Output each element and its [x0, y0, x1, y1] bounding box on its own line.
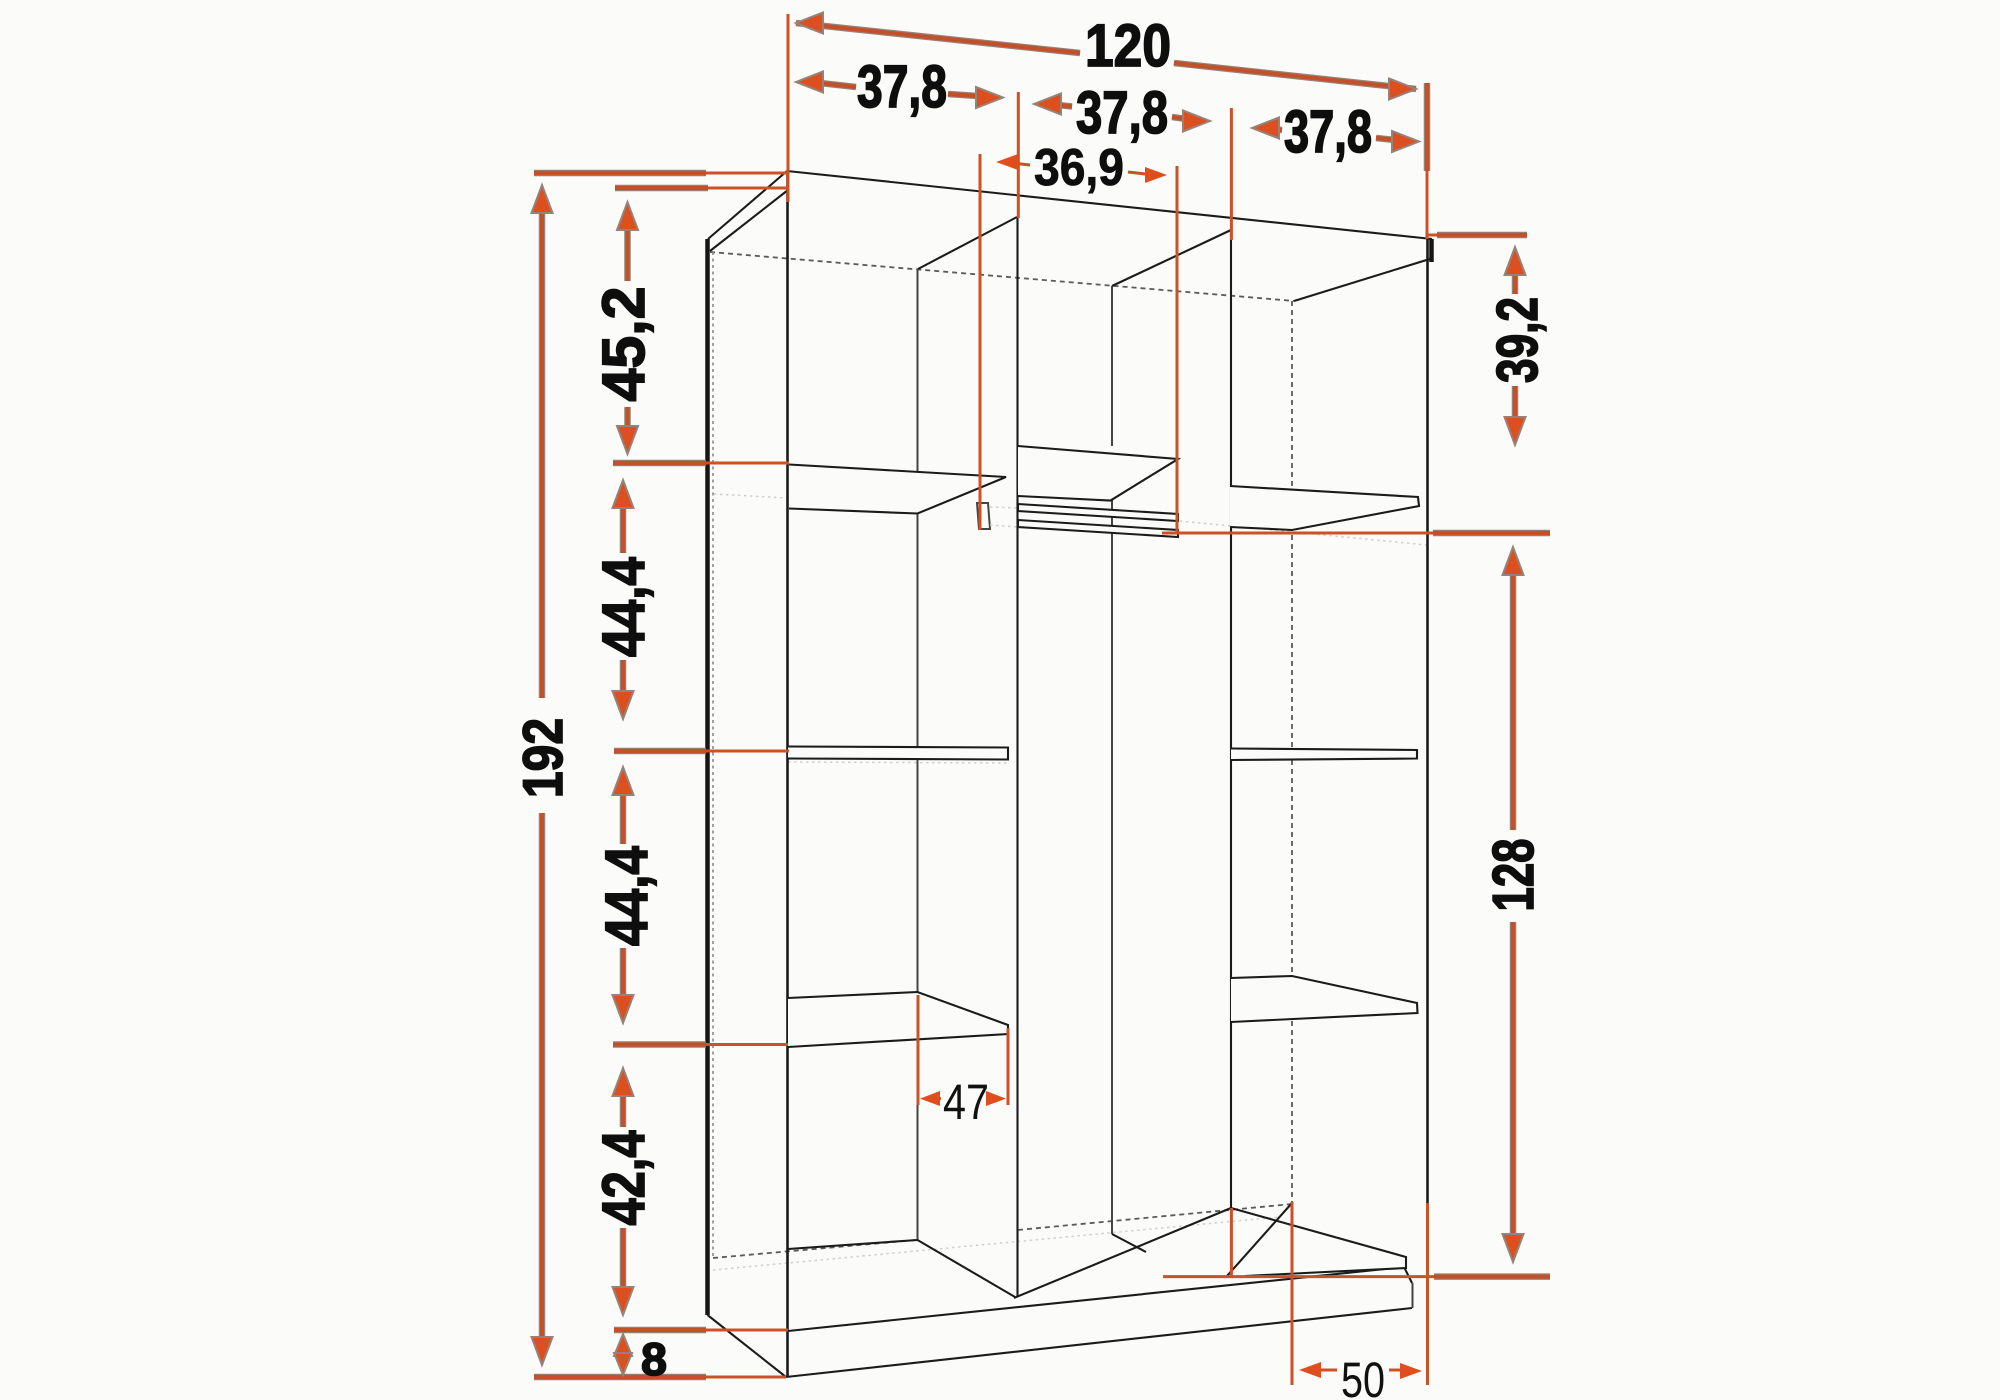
- svg-text:39,2: 39,2: [1485, 297, 1550, 383]
- svg-text:128: 128: [1481, 839, 1546, 912]
- svg-text:8: 8: [641, 1333, 667, 1385]
- svg-text:37,8: 37,8: [1284, 98, 1372, 165]
- svg-text:44,4: 44,4: [590, 556, 657, 657]
- svg-text:42,4: 42,4: [590, 1130, 657, 1226]
- svg-text:37,8: 37,8: [1076, 79, 1168, 146]
- svg-text:47: 47: [943, 1074, 989, 1130]
- svg-text:36,9: 36,9: [1034, 139, 1124, 197]
- svg-text:50: 50: [1341, 1352, 1385, 1400]
- svg-text:45,2: 45,2: [590, 287, 657, 402]
- svg-text:37,8: 37,8: [857, 53, 947, 120]
- svg-text:192: 192: [511, 718, 574, 798]
- svg-text:120: 120: [1085, 12, 1171, 79]
- svg-text:44,4: 44,4: [593, 845, 660, 946]
